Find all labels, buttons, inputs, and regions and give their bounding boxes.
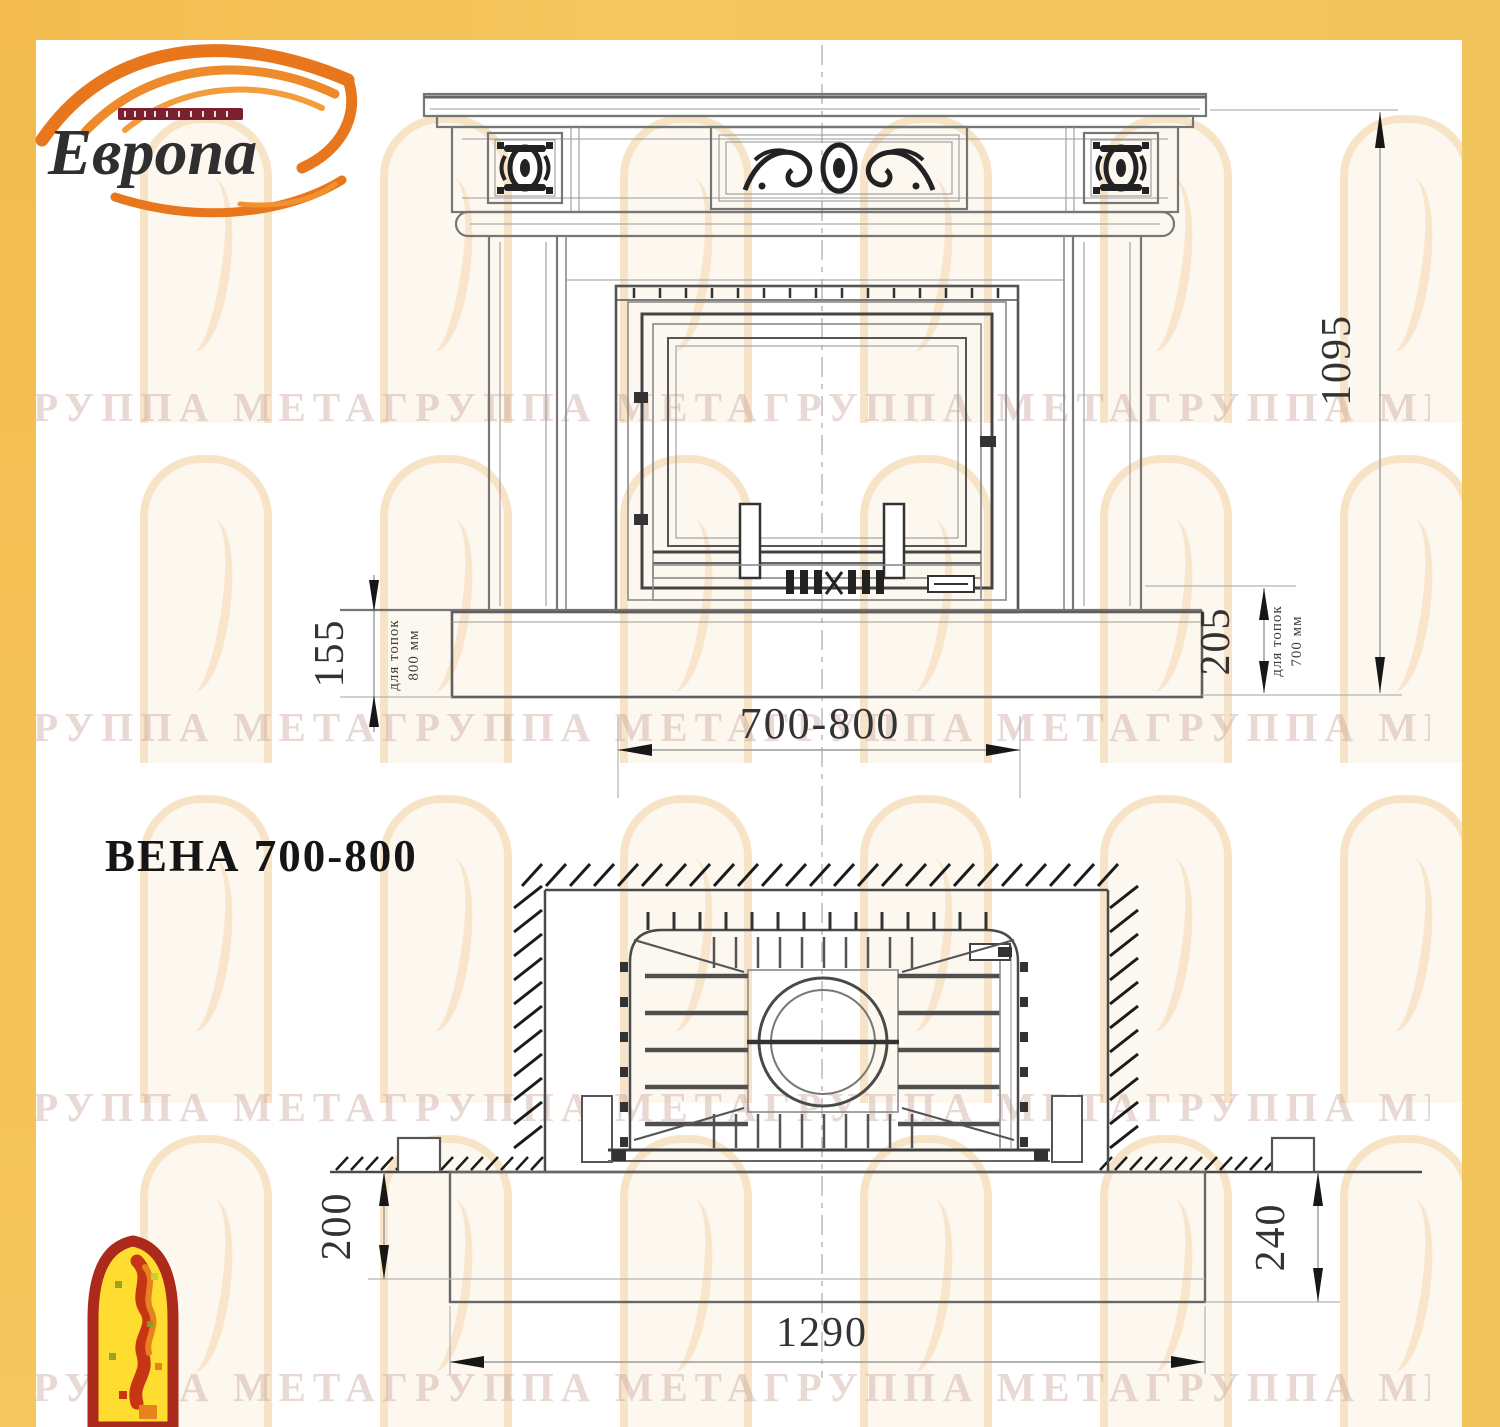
dim-hearth-left-note: 800 мм <box>406 629 422 680</box>
brand-logo: Европа <box>30 22 375 252</box>
rosette-ornament <box>488 133 562 203</box>
firebox-plan <box>582 912 1082 1162</box>
frame-border-right <box>1462 0 1500 1427</box>
dim-depth-left: 200 <box>314 1172 389 1279</box>
brand-name: Европа <box>47 116 257 189</box>
dim-hearth-right-value: 205 <box>1193 607 1239 676</box>
dim-overall-height-value: 1095 <box>1314 314 1360 406</box>
dim-firebox-width-value: 700-800 <box>740 699 901 748</box>
dim-hearth-left-note: для топок <box>386 619 402 690</box>
rosette-ornament <box>1084 133 1158 203</box>
dim-overall-width-value: 1290 <box>776 1310 868 1356</box>
dim-overall-width: 1290 <box>450 1306 1205 1374</box>
dim-firebox-width: 700-800 <box>618 699 1020 798</box>
dim-depth-right: 240 <box>1248 1172 1323 1302</box>
door-handle <box>740 504 760 578</box>
dim-hearth-right: 205 для топок 700 мм <box>1145 586 1305 693</box>
portal-leg-footprint <box>398 1138 440 1172</box>
dim-hearth-left: 155 для топок 800 мм <box>307 575 422 732</box>
corner-emblem-icon <box>85 1233 181 1427</box>
portal-leg-footprint <box>1272 1138 1314 1172</box>
model-title: ВЕНА 700-800 <box>105 830 418 882</box>
dim-depth-right-value: 240 <box>1248 1203 1294 1272</box>
door-handle <box>884 504 904 578</box>
dim-hearth-right-note: 700 мм <box>1289 615 1305 666</box>
firebox-insert <box>616 286 1018 612</box>
dim-depth-left-value: 200 <box>314 1192 360 1261</box>
dim-hearth-right-note: для топок <box>1269 605 1285 676</box>
page: ГРУППА МЕТАГРУППА МЕТАГРУППА МЕТАГРУППА … <box>0 0 1500 1427</box>
dim-overall-height: 1095 <box>1210 110 1398 693</box>
hearth-slab <box>450 1172 1205 1302</box>
dim-hearth-left-value: 155 <box>307 619 353 688</box>
